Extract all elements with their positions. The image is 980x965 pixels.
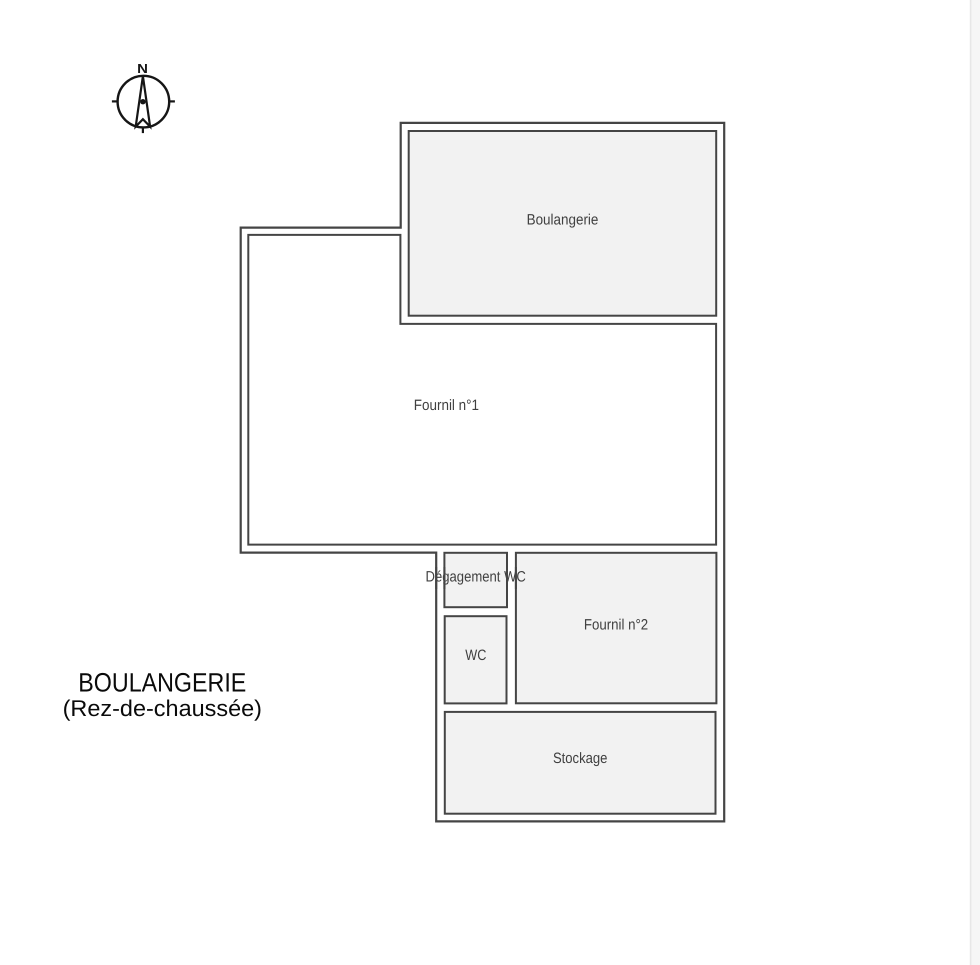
- svg-text:Boulangerie: Boulangerie: [527, 211, 599, 228]
- svg-text:Fournil n°1: Fournil n°1: [414, 397, 479, 414]
- svg-text:Dégagement WC: Dégagement WC: [426, 569, 527, 586]
- svg-text:Stockage: Stockage: [553, 750, 608, 767]
- svg-text:WC: WC: [465, 647, 486, 664]
- svg-text:Fournil n°2: Fournil n°2: [584, 617, 648, 634]
- svg-text:BOULANGERIE: BOULANGERIE: [78, 668, 246, 698]
- svg-text:(Rez-de-chaussée): (Rez-de-chaussée): [63, 695, 262, 721]
- svg-text:N: N: [137, 61, 148, 76]
